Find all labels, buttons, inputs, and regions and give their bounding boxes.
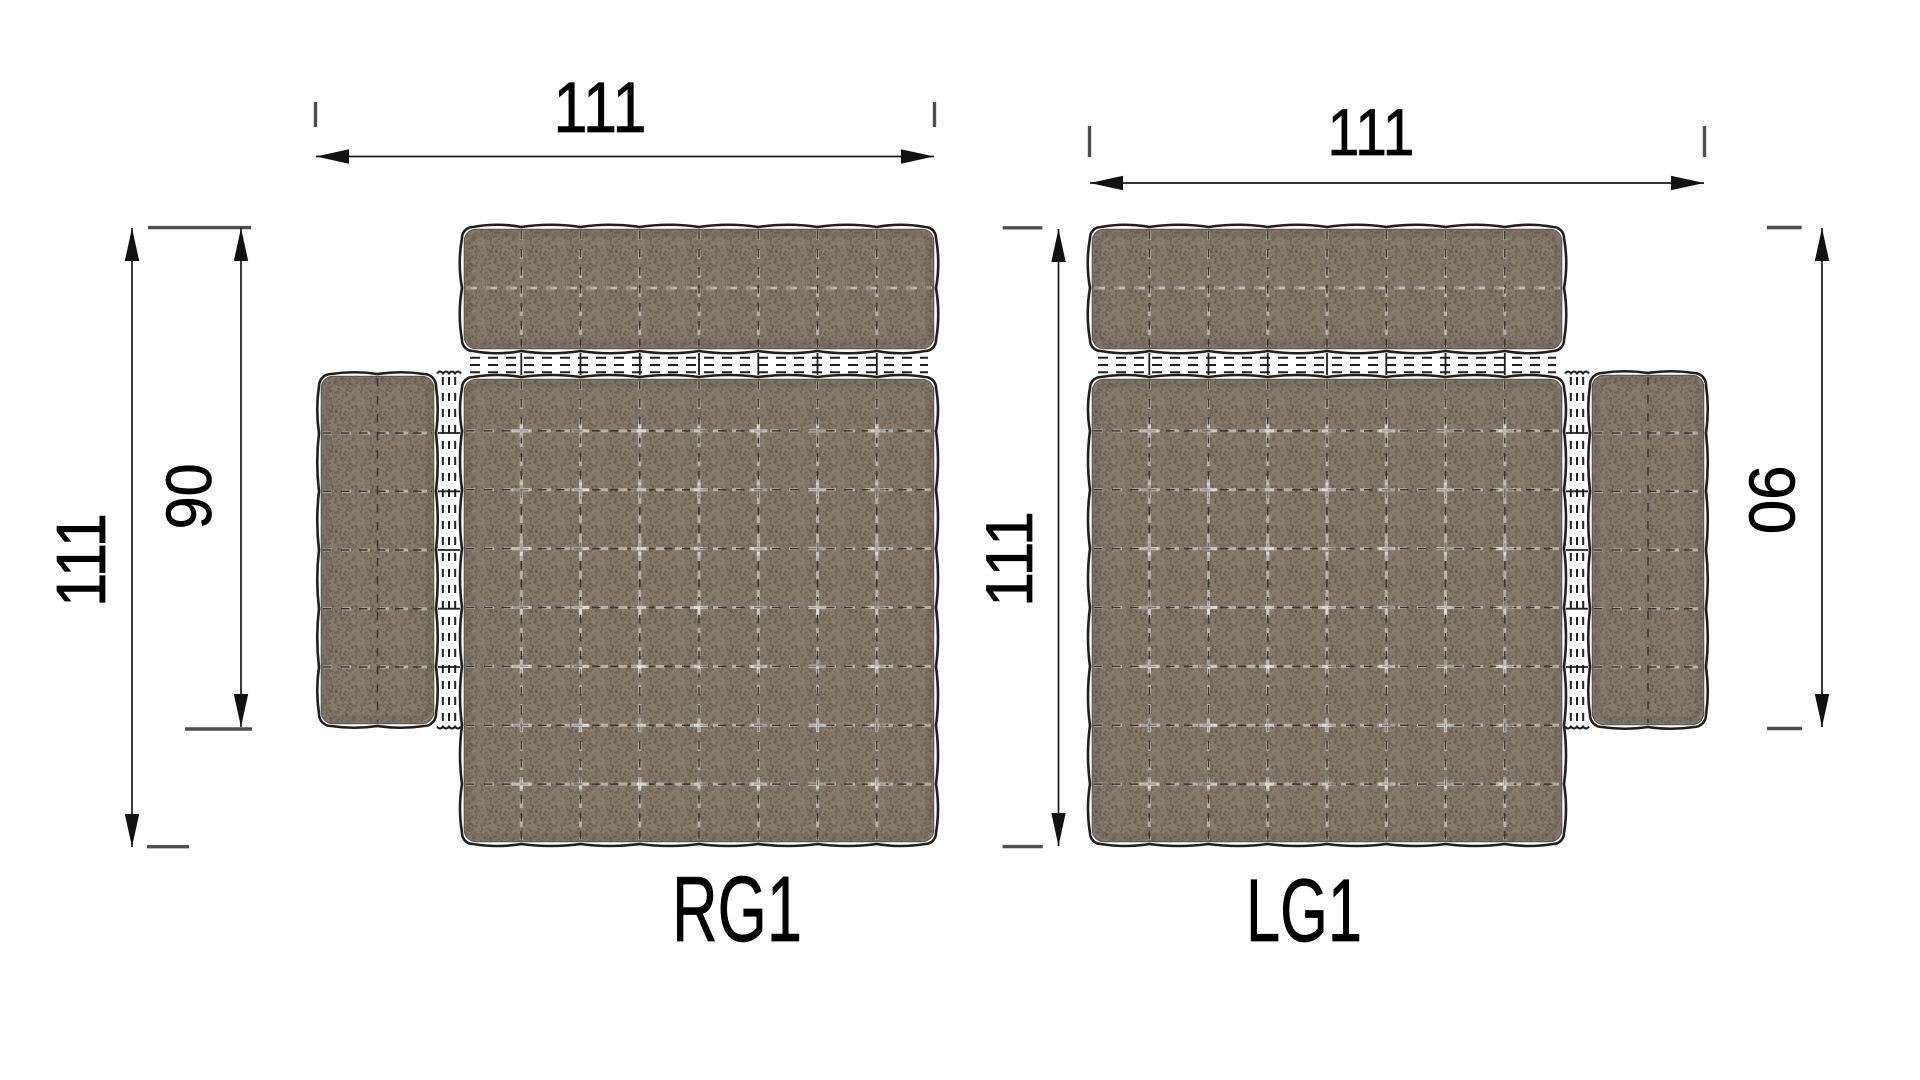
svg-text:RG1: RG1 [672, 857, 802, 961]
svg-text:111: 111 [42, 513, 120, 607]
svg-text:90: 90 [153, 463, 225, 529]
svg-text:111: 111 [972, 511, 1046, 607]
svg-text:111: 111 [554, 69, 647, 148]
svg-text:LG1: LG1 [1246, 860, 1362, 960]
svg-text:90: 90 [1736, 465, 1809, 534]
svg-text:111: 111 [1328, 95, 1415, 169]
